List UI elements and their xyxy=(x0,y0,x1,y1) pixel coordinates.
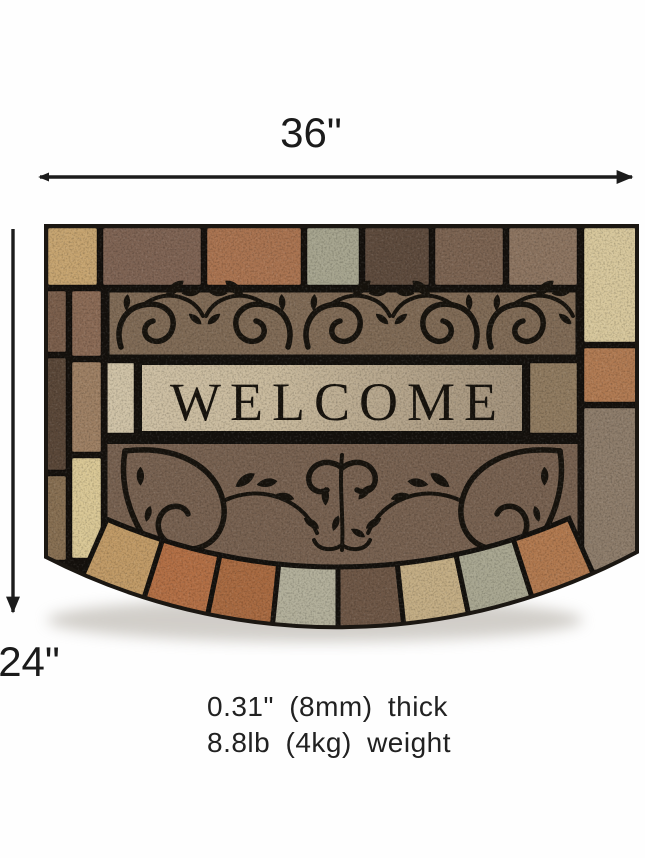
thickness-note: 0.31" (8mm) thick xyxy=(207,691,448,722)
doormat: WELCOME xyxy=(40,220,643,650)
spec-notes: 0.31" (8mm) thick 8.8lb (4kg) weight xyxy=(207,691,451,758)
product-dimension-figure: 36" 24" xyxy=(0,0,645,858)
width-label: 36" xyxy=(280,109,342,156)
figure-canvas: 36" 24" xyxy=(0,0,645,858)
texture-overlay xyxy=(46,226,637,636)
weight-note: 8.8lb (4kg) weight xyxy=(207,727,451,758)
height-label: 24" xyxy=(0,638,60,685)
width-dimension: 36" xyxy=(40,109,632,177)
